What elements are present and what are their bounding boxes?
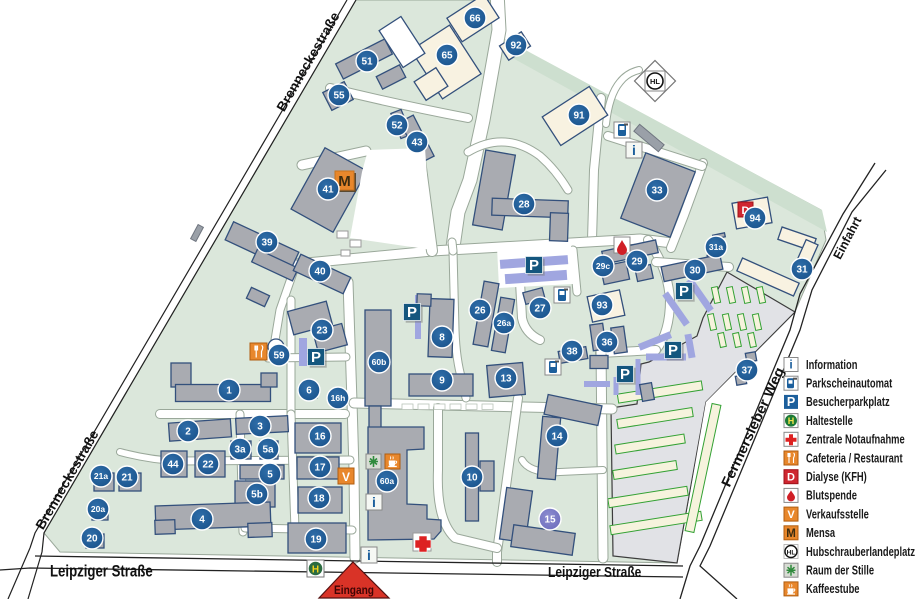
svg-text:93: 93	[596, 301, 608, 312]
svg-text:P: P	[620, 366, 630, 383]
svg-text:4: 4	[199, 515, 205, 526]
svg-text:H: H	[788, 416, 795, 426]
svg-text:16: 16	[314, 432, 326, 443]
svg-text:51: 51	[361, 57, 373, 68]
svg-text:Haltestelle: Haltestelle	[806, 415, 853, 429]
svg-text:H: H	[312, 564, 319, 575]
svg-text:38: 38	[566, 347, 578, 358]
svg-text:Leipziger Straße: Leipziger Straße	[548, 564, 642, 581]
svg-text:36: 36	[601, 338, 613, 349]
svg-text:6: 6	[306, 386, 312, 397]
svg-text:21: 21	[121, 473, 133, 484]
svg-text:HL: HL	[650, 77, 660, 86]
svg-text:5: 5	[267, 470, 273, 481]
svg-text:39: 39	[261, 238, 273, 249]
svg-text:92: 92	[510, 41, 522, 52]
svg-text:10: 10	[466, 473, 478, 484]
svg-text:52: 52	[391, 121, 403, 132]
svg-text:HL: HL	[787, 549, 796, 556]
svg-text:V: V	[787, 509, 795, 521]
svg-text:13: 13	[500, 374, 512, 385]
svg-text:22: 22	[202, 460, 214, 471]
svg-text:Zentrale Notaufnahme: Zentrale Notaufnahme	[806, 433, 905, 447]
svg-text:94: 94	[749, 214, 761, 225]
svg-text:Eingang: Eingang	[334, 585, 374, 597]
svg-text:55: 55	[333, 91, 345, 102]
svg-text:V: V	[342, 470, 350, 484]
svg-text:P: P	[311, 349, 321, 366]
svg-text:43: 43	[411, 138, 423, 149]
svg-text:Verkaufsstelle: Verkaufsstelle	[806, 508, 869, 522]
svg-text:M: M	[786, 528, 796, 540]
svg-text:18: 18	[313, 494, 325, 505]
svg-text:8: 8	[439, 333, 445, 344]
svg-text:29c: 29c	[596, 261, 610, 271]
svg-text:P: P	[668, 342, 678, 359]
svg-text:Cafeteria / Restaurant: Cafeteria / Restaurant	[806, 452, 903, 466]
svg-text:3: 3	[257, 422, 263, 433]
svg-text:Information: Information	[806, 358, 857, 372]
svg-text:59: 59	[273, 351, 285, 362]
svg-text:23: 23	[316, 326, 328, 337]
svg-text:i: i	[789, 358, 792, 372]
svg-text:31: 31	[796, 265, 808, 276]
svg-text:37: 37	[741, 366, 753, 377]
svg-text:44: 44	[167, 460, 179, 471]
svg-text:Parkscheinautomat: Parkscheinautomat	[806, 377, 892, 391]
svg-text:29: 29	[631, 257, 643, 268]
svg-text:15: 15	[544, 515, 556, 526]
svg-text:Raum der Stille: Raum der Stille	[806, 564, 874, 578]
svg-text:14: 14	[551, 432, 563, 443]
svg-text:91: 91	[573, 111, 585, 122]
svg-text:M: M	[338, 173, 351, 190]
svg-text:26: 26	[474, 306, 486, 317]
svg-text:2: 2	[185, 427, 191, 438]
svg-text:P: P	[679, 283, 689, 300]
svg-text:5a: 5a	[262, 445, 274, 456]
svg-text:66: 66	[469, 14, 481, 25]
svg-text:Besucherparkplatz: Besucherparkplatz	[806, 396, 890, 410]
svg-text:60b: 60b	[372, 357, 387, 367]
svg-text:28: 28	[518, 200, 530, 211]
svg-text:21a: 21a	[94, 471, 108, 481]
svg-text:16h: 16h	[331, 393, 346, 403]
svg-text:i: i	[372, 494, 376, 510]
svg-text:9: 9	[439, 376, 445, 387]
svg-text:5b: 5b	[251, 490, 263, 501]
svg-text:P: P	[787, 395, 795, 409]
svg-text:P: P	[407, 304, 417, 321]
svg-text:Dialyse (KFH): Dialyse (KFH)	[806, 471, 867, 485]
svg-text:Blutspende: Blutspende	[806, 489, 857, 503]
svg-text:Leipziger Straße: Leipziger Straße	[50, 562, 153, 581]
svg-text:1: 1	[226, 386, 232, 397]
svg-text:20: 20	[86, 534, 98, 545]
svg-text:19: 19	[310, 535, 322, 546]
svg-text:26a: 26a	[497, 318, 511, 328]
svg-text:41: 41	[322, 185, 334, 196]
svg-text:33: 33	[651, 186, 663, 197]
svg-text:D: D	[787, 472, 795, 484]
svg-text:3a: 3a	[234, 445, 246, 456]
svg-text:i: i	[367, 547, 371, 563]
svg-text:31a: 31a	[709, 242, 723, 252]
svg-text:i: i	[632, 142, 636, 158]
svg-text:40: 40	[314, 267, 326, 278]
svg-text:17: 17	[314, 463, 326, 474]
svg-text:30: 30	[689, 266, 701, 277]
svg-text:27: 27	[534, 304, 546, 315]
svg-text:65: 65	[441, 51, 453, 62]
svg-text:20a: 20a	[91, 504, 105, 514]
svg-text:P: P	[529, 257, 539, 274]
svg-text:60a: 60a	[380, 476, 394, 486]
svg-text:Mensa: Mensa	[806, 527, 836, 541]
svg-text:Hubschrauberlandeplatz: Hubschrauberlandeplatz	[806, 545, 915, 559]
svg-text:Kaffeestube: Kaffeestube	[806, 583, 860, 597]
